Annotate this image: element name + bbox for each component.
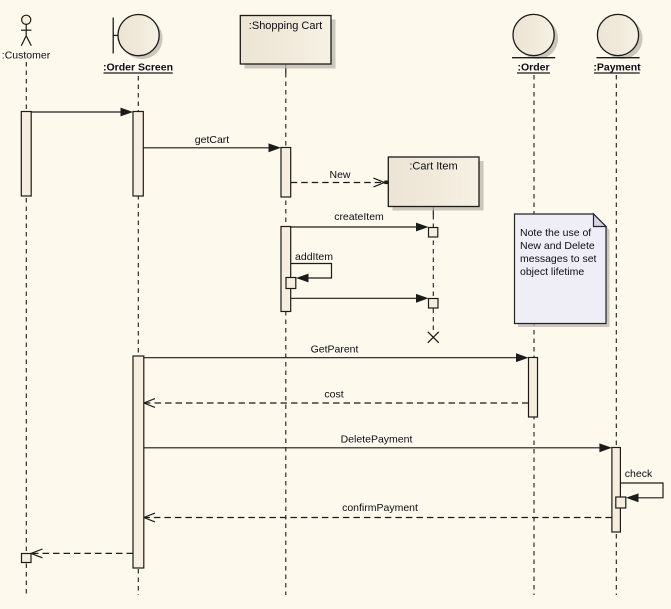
svg-text::Cart Item: :Cart Item bbox=[409, 161, 457, 173]
svg-text::Order Screen: :Order Screen bbox=[103, 62, 173, 74]
svg-text:messages to set: messages to set bbox=[520, 253, 597, 265]
svg-text:New: New bbox=[329, 169, 350, 181]
svg-text:GetParent: GetParent bbox=[311, 343, 359, 355]
svg-text:addItem: addItem bbox=[295, 251, 333, 263]
svg-text:cost: cost bbox=[324, 389, 343, 401]
svg-text::Shopping Cart: :Shopping Cart bbox=[249, 20, 322, 32]
svg-text::Order: :Order bbox=[517, 62, 549, 74]
svg-text:createItem: createItem bbox=[334, 211, 384, 223]
svg-text:getCart: getCart bbox=[195, 134, 230, 146]
svg-text:New and Delete: New and Delete bbox=[520, 240, 595, 252]
svg-text::Payment: :Payment bbox=[593, 62, 641, 74]
svg-text:confirmPayment: confirmPayment bbox=[342, 502, 418, 514]
svg-text::Customer: :Customer bbox=[2, 50, 51, 62]
svg-text:DeletePayment: DeletePayment bbox=[341, 433, 413, 445]
svg-text:check: check bbox=[625, 468, 653, 480]
svg-text:Note the use of: Note the use of bbox=[520, 227, 591, 239]
svg-text:object lifetime: object lifetime bbox=[520, 266, 584, 278]
